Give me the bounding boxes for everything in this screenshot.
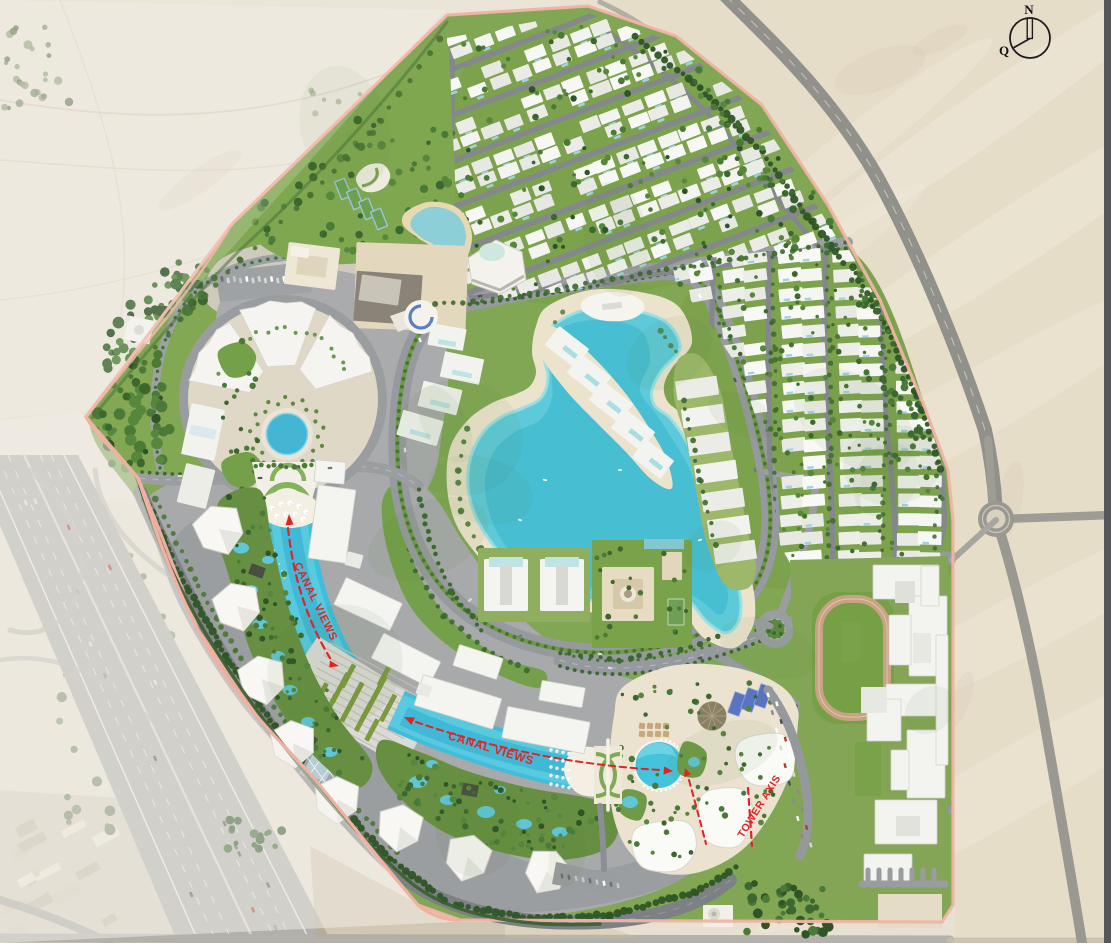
svg-text:N: N [1024,2,1034,17]
svg-text:Q: Q [999,43,1009,58]
